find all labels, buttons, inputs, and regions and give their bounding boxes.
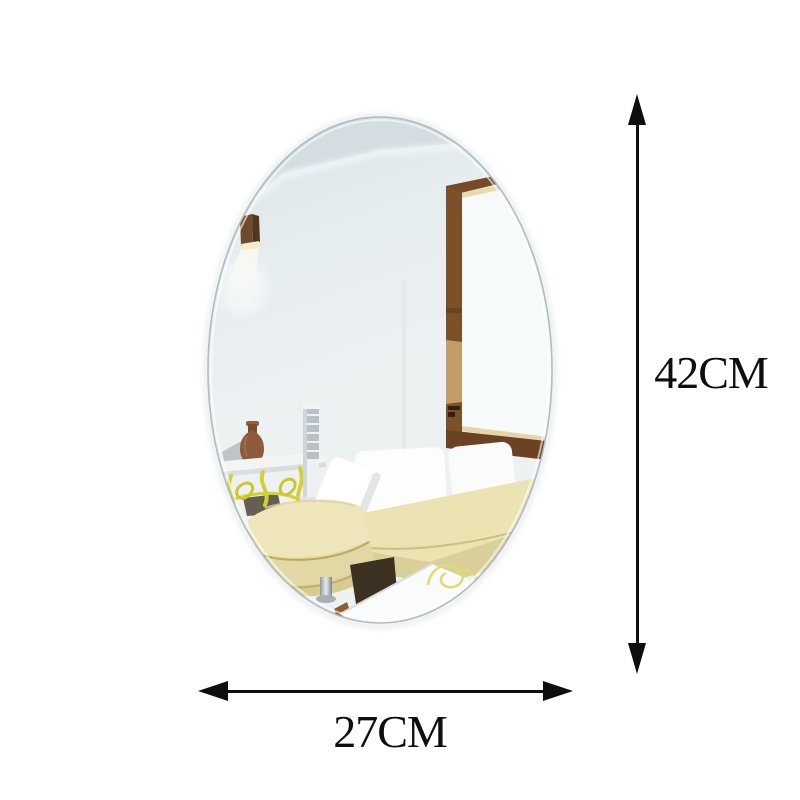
width-label: 27CM [333, 709, 447, 755]
arrowhead-down-icon [628, 643, 646, 674]
vertical-arrow-shaft [636, 120, 639, 646]
oval-mirror [0, 0, 800, 800]
arrowhead-right-icon [543, 681, 573, 701]
height-label: 42CM [654, 350, 768, 396]
reflected-pedestal-column [300, 402, 322, 504]
product-image-canvas: 42CM 27CM [0, 0, 800, 800]
horizontal-arrow-shaft [224, 690, 546, 693]
reflected-window-frame [446, 172, 556, 461]
